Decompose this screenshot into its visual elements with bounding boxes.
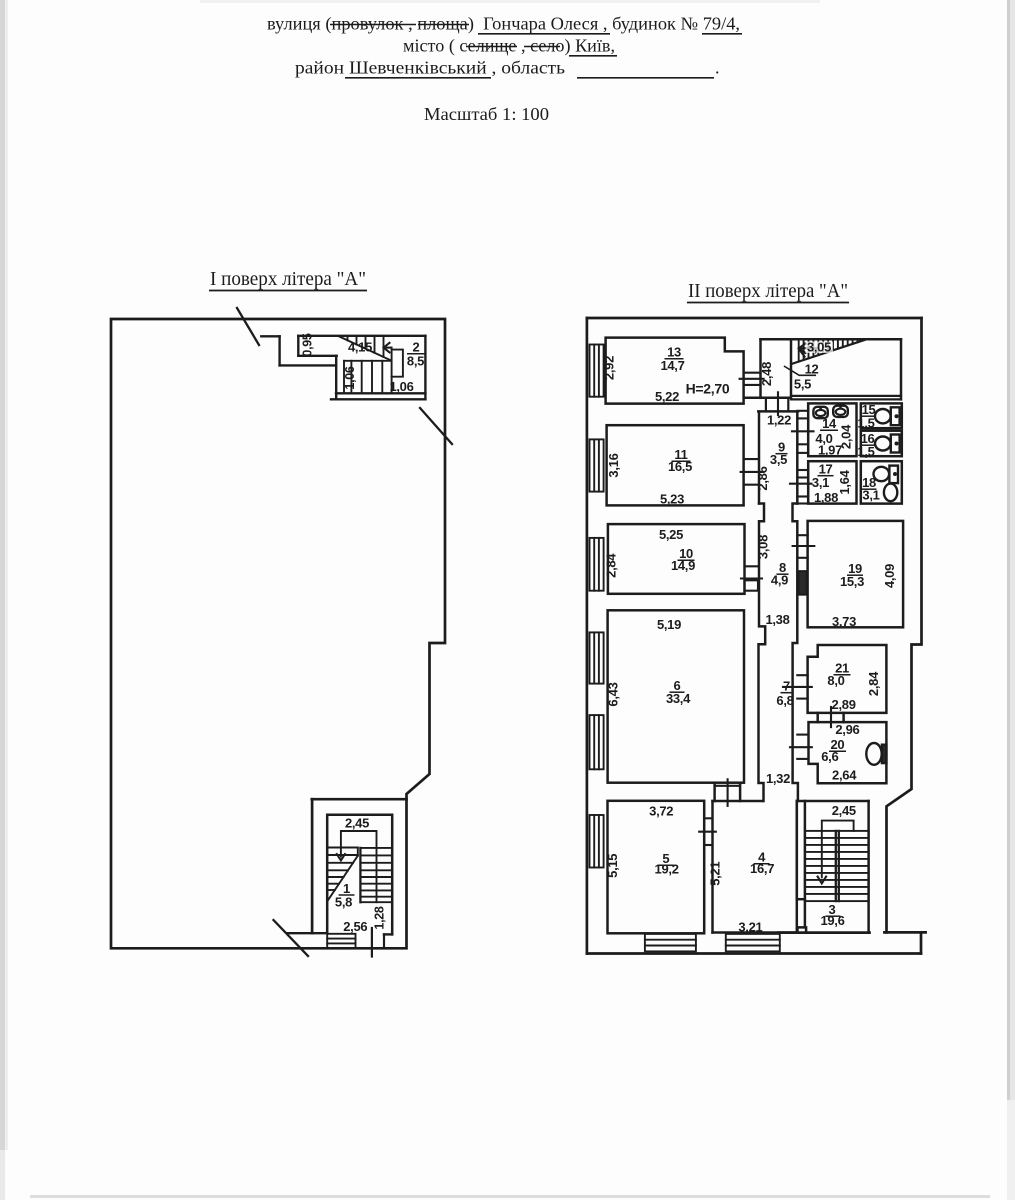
svg-text:3,05: 3,05 (807, 340, 831, 355)
svg-text:7: 7 (783, 679, 790, 694)
svg-text:2,86: 2,86 (755, 466, 770, 490)
svg-text:14,7: 14,7 (660, 358, 684, 373)
svg-text:2,84: 2,84 (604, 553, 619, 578)
svg-text:33,4: 33,4 (666, 691, 691, 706)
svg-text:5,23: 5,23 (660, 491, 684, 506)
svg-text:2,84: 2,84 (866, 671, 881, 696)
svg-text:І поверх літера "А": І поверх літера "А" (210, 268, 366, 290)
svg-text:1,88: 1,88 (814, 490, 838, 505)
svg-text:6,8: 6,8 (776, 693, 793, 708)
svg-text:1,5: 1,5 (857, 444, 874, 459)
svg-text:2,56: 2,56 (343, 919, 367, 934)
svg-text:14,9: 14,9 (671, 558, 695, 573)
svg-text:1,22: 1,22 (767, 413, 791, 428)
svg-text:2,45: 2,45 (345, 816, 369, 831)
svg-text:3,1: 3,1 (812, 475, 829, 490)
svg-text:H=2,70: H=2,70 (686, 380, 730, 396)
svg-text:2,04: 2,04 (839, 424, 854, 449)
svg-text:3,16: 3,16 (606, 453, 621, 477)
svg-text:8,0: 8,0 (827, 673, 844, 688)
svg-text:3,1: 3,1 (862, 488, 879, 503)
svg-text:3,21: 3,21 (738, 920, 762, 935)
svg-text:2,89: 2,89 (832, 697, 856, 712)
svg-text:8,5: 8,5 (407, 354, 424, 369)
svg-text:1,06: 1,06 (343, 366, 357, 389)
svg-text:6,43: 6,43 (606, 682, 621, 706)
svg-text:4,09: 4,09 (882, 564, 897, 588)
svg-text:5,19: 5,19 (657, 617, 681, 632)
svg-text:5,25: 5,25 (659, 527, 683, 542)
svg-text:6,6: 6,6 (821, 749, 838, 764)
svg-text:2,92: 2,92 (602, 356, 617, 380)
svg-text:5,15: 5,15 (605, 854, 620, 878)
svg-text:1,64: 1,64 (837, 469, 852, 494)
svg-text:1,32: 1,32 (766, 771, 790, 786)
svg-text:4,15: 4,15 (348, 340, 372, 355)
svg-text:.: . (715, 58, 720, 78)
svg-text:19,6: 19,6 (820, 913, 844, 928)
svg-text:15,3: 15,3 (840, 574, 864, 589)
svg-text:5,22: 5,22 (655, 389, 679, 404)
svg-text:1,5: 1,5 (857, 416, 874, 431)
svg-text:3,73: 3,73 (832, 614, 856, 629)
svg-text:14: 14 (822, 416, 837, 431)
svg-text:2,64: 2,64 (832, 767, 857, 782)
svg-text:3,08: 3,08 (756, 535, 771, 559)
svg-text:16,5: 16,5 (668, 459, 692, 474)
svg-text:Масштаб 1: 100: Масштаб 1: 100 (424, 104, 549, 124)
svg-text:12: 12 (805, 362, 819, 377)
svg-text:19,2: 19,2 (655, 861, 679, 876)
svg-text:2: 2 (413, 340, 420, 355)
svg-text:2,96: 2,96 (835, 722, 859, 737)
svg-text:1,06: 1,06 (389, 379, 413, 394)
svg-text:3,5: 3,5 (770, 452, 787, 467)
svg-text:2,45: 2,45 (832, 803, 856, 818)
svg-text:район Шевченківський , область: район Шевченківський , область (295, 58, 565, 78)
svg-text:3,72: 3,72 (649, 803, 673, 818)
svg-text:16,7: 16,7 (750, 861, 774, 876)
svg-text:4,9: 4,9 (771, 573, 788, 588)
svg-text:5,21: 5,21 (708, 862, 723, 886)
svg-text:ІІ поверх літера "А": ІІ поверх літера "А" (688, 280, 848, 302)
svg-text:1,28: 1,28 (372, 906, 386, 929)
svg-text:5,5: 5,5 (794, 377, 811, 392)
svg-text:1,38: 1,38 (765, 612, 789, 627)
svg-text:5,8: 5,8 (335, 895, 352, 910)
svg-text:2,48: 2,48 (759, 362, 774, 386)
svg-text:0,95: 0,95 (301, 333, 315, 356)
